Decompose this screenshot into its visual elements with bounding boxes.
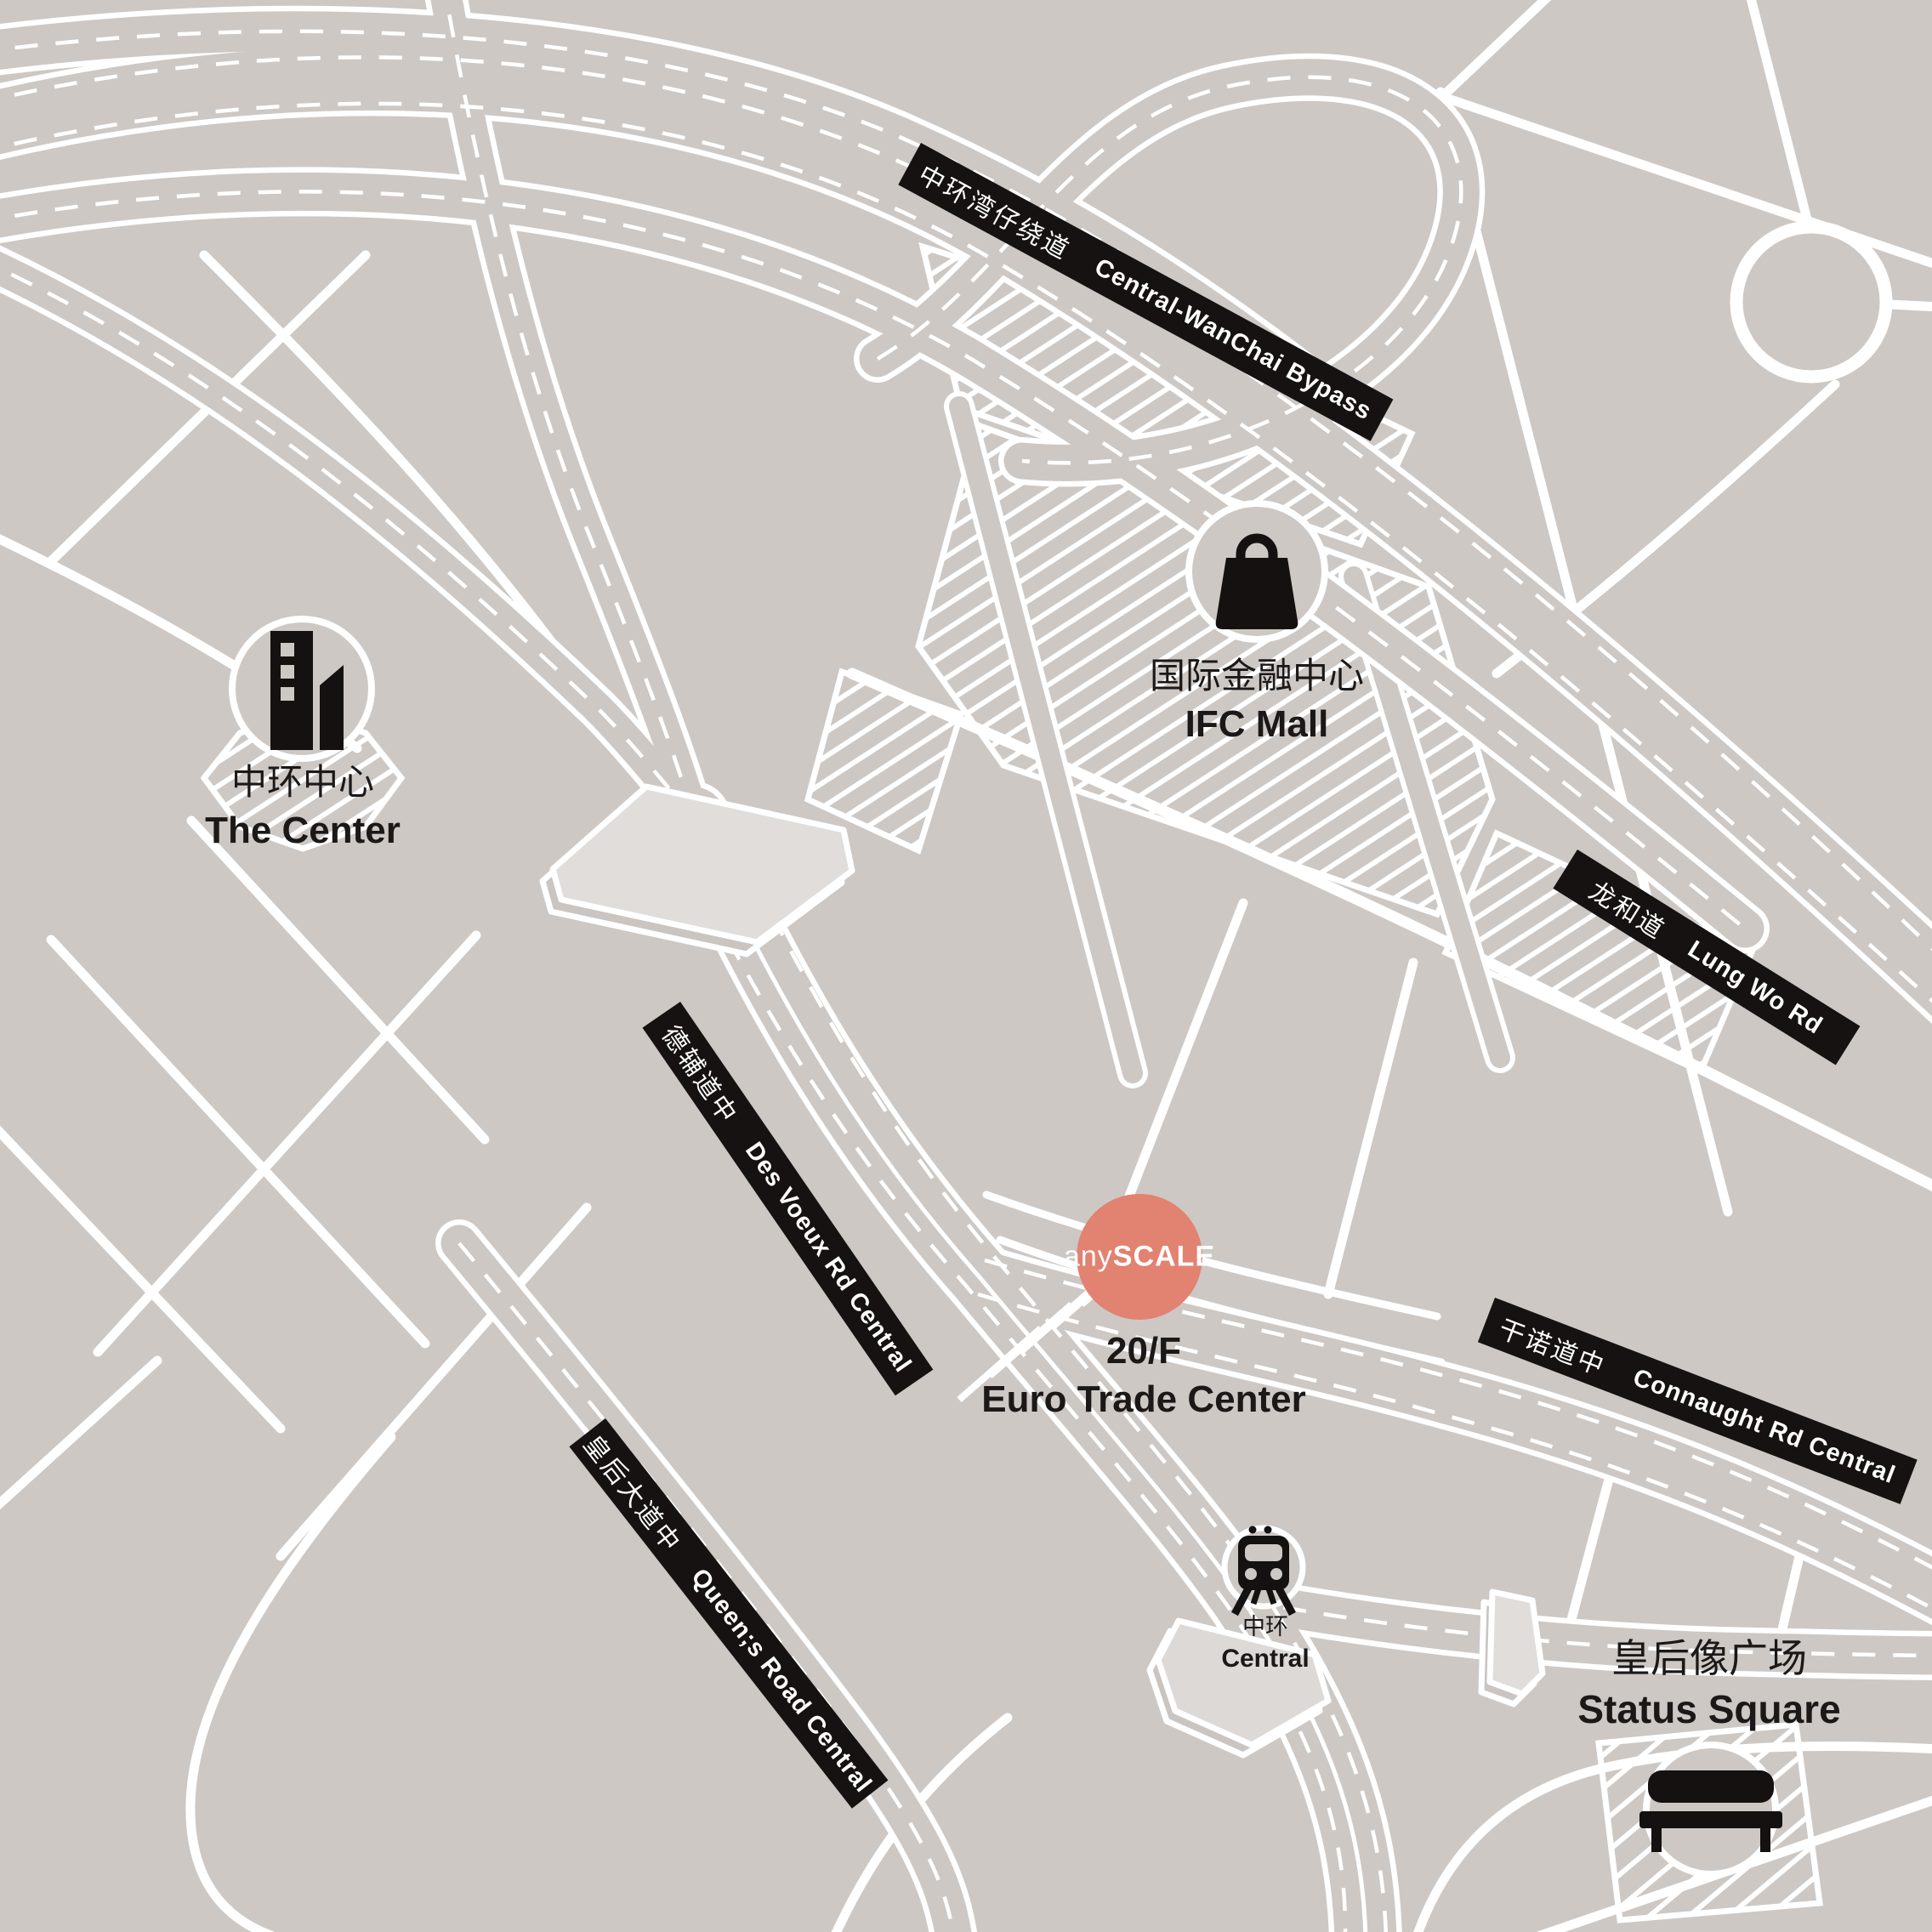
office-address-label: 20/F Euro Trade Center	[981, 1327, 1305, 1423]
poi-label-statue-square: 皇后像广场 Status Square	[1577, 1634, 1840, 1736]
marker-the-center	[232, 619, 372, 759]
marker-circle	[1646, 1745, 1776, 1874]
anyscale-logo: anySCALE	[1064, 1241, 1215, 1274]
poi-name-en: Status Square	[1577, 1685, 1840, 1736]
poi-label-the-center: 中环中心 The Center	[205, 759, 401, 855]
marker-ifc-mall	[1189, 503, 1325, 639]
poi-name-zh: 国际金融中心	[1150, 653, 1364, 700]
poi-name-zh: 中环中心	[205, 759, 401, 806]
poi-name-en: Central	[1221, 1642, 1309, 1675]
office-floor: 20/F	[981, 1327, 1305, 1375]
poi-name-en: IFC Mall	[1150, 700, 1364, 748]
poi-label-central-station: 中环 Central	[1221, 1612, 1309, 1675]
office-building: Euro Trade Center	[981, 1375, 1305, 1423]
poi-label-ifc-mall: 国际金融中心 IFC Mall	[1150, 653, 1364, 748]
footbridge-statue	[1490, 1592, 1543, 1694]
poi-name-en: The Center	[205, 806, 401, 855]
poi-name-zh: 皇后像广场	[1577, 1634, 1840, 1685]
brand-light-text: any	[1064, 1241, 1113, 1273]
marker-statue-square	[1639, 1745, 1782, 1874]
map-canvas: 中环湾仔绕道 Central-WanChai Bypass 龙和道 Lung W…	[0, 0, 1932, 1932]
poi-name-zh: 中环	[1221, 1612, 1309, 1642]
street	[1889, 304, 1932, 308]
brand-bold-text: SCALE	[1113, 1241, 1215, 1273]
